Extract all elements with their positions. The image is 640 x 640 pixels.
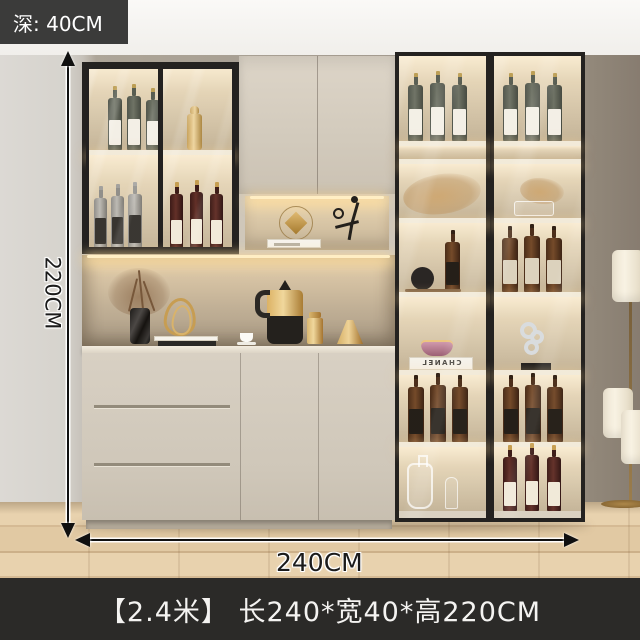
- gold-sculpture: [163, 297, 198, 337]
- arrow-left-icon: [75, 533, 90, 547]
- wine-bottle: [210, 194, 223, 250]
- arrow-up-icon: [61, 51, 75, 66]
- cabinet-interior: [86, 66, 235, 250]
- plinth: [86, 520, 392, 529]
- whisky-bottle: [445, 242, 460, 292]
- wine-bottle: [503, 85, 518, 141]
- door-seam: [240, 353, 241, 520]
- gold-cone-cup: [337, 320, 363, 344]
- wine-bottle: [127, 96, 141, 150]
- wine-bottle: [452, 85, 467, 141]
- gold-cup: [307, 318, 323, 344]
- chanel-book-label: CHANEL: [421, 360, 462, 367]
- shelf-row: [494, 146, 581, 159]
- gold-figurine: [187, 114, 202, 150]
- arrow-down-icon: [61, 523, 75, 538]
- shelf-row: [494, 164, 581, 218]
- caption-bar: 【2.4米】 长240*宽40*高220CM: [0, 578, 640, 640]
- wine-bottle: [146, 100, 160, 150]
- coffee-cup: [240, 333, 253, 342]
- decor-books: [154, 336, 218, 346]
- depth-label: 深: 40CM: [13, 8, 103, 37]
- black-vase: [130, 308, 150, 344]
- wine-bottle: [190, 192, 203, 250]
- height-dimension-arrow: [67, 64, 69, 524]
- shelf-row: [399, 223, 486, 292]
- width-dimension-arrow: [88, 539, 566, 541]
- glass-vase: [514, 201, 554, 216]
- whisky-bottle: [546, 238, 562, 292]
- wine-bottle: [525, 83, 540, 141]
- chanel-book: CHANEL: [409, 357, 473, 370]
- silver-sculpture: [516, 318, 556, 370]
- glass-decanter: [407, 463, 433, 509]
- depth-label-badge: 深: 40CM: [0, 0, 128, 44]
- base-cabinet: [82, 353, 395, 520]
- display-niche: [239, 194, 395, 255]
- decor-cube-sculpture: [279, 206, 313, 240]
- wine-bottle: [503, 457, 517, 511]
- wine-glass: [445, 477, 458, 509]
- pink-bowl: [421, 340, 453, 356]
- wine-bottle: [170, 194, 183, 250]
- width-label: 240CM: [276, 548, 363, 577]
- gold-cube: [285, 212, 308, 235]
- drawer-handle-groove: [94, 405, 230, 408]
- cabinet-base: [494, 511, 581, 518]
- caption-text: 【2.4米】 长240*宽40*高220CM: [99, 590, 541, 629]
- spirit-bottle: [94, 198, 107, 250]
- cabinet-interior: [494, 56, 581, 518]
- whisky-bottle: [525, 385, 541, 442]
- whisky-bottle: [430, 385, 446, 442]
- decor-disc: [411, 267, 434, 290]
- whisky-bottle: [503, 387, 519, 442]
- left-glass-cabinet: [82, 62, 239, 254]
- countertop: [82, 346, 395, 353]
- arrow-right-icon: [564, 533, 579, 547]
- door-seam: [318, 353, 319, 520]
- lamp-base: [601, 500, 640, 508]
- lamp-shade: [612, 250, 640, 302]
- shelf-row: [399, 447, 486, 511]
- upper-cabinet-doors: [239, 56, 395, 194]
- shelf-row: [494, 223, 581, 292]
- shelf-row: [494, 375, 581, 442]
- drawer-handle-groove: [94, 463, 230, 466]
- wine-bottle: [547, 457, 561, 511]
- shelf-row: CHANEL: [399, 297, 486, 370]
- shelf-row: [399, 164, 486, 218]
- shelf-row: [86, 66, 235, 150]
- whisky-bottle: [524, 236, 540, 292]
- height-label: 220CM: [40, 257, 64, 330]
- product-photo: CHANEL: [0, 0, 640, 640]
- cabinet-base: [399, 511, 486, 518]
- wine-bottle: [547, 85, 562, 141]
- whisky-bottle: [408, 387, 424, 442]
- wine-bottle: [108, 98, 122, 150]
- shelf-row: [399, 146, 486, 159]
- shelf-row: [399, 56, 486, 141]
- wine-bottle: [525, 455, 539, 511]
- shelf-row: [494, 56, 581, 141]
- wine-bottle: [408, 85, 423, 141]
- spirit-bottle: [128, 194, 142, 250]
- shelf-row: [494, 297, 581, 370]
- coffee-pot: [267, 288, 303, 344]
- open-shelf-niche: [82, 255, 395, 346]
- tall-glass-cabinet-right: [490, 52, 585, 522]
- tall-glass-cabinet-left: CHANEL: [395, 52, 490, 522]
- shelf-row: [494, 447, 581, 511]
- spirit-bottle: [111, 196, 124, 250]
- cabinet-interior: CHANEL: [399, 56, 486, 518]
- dancer-figurine: [331, 196, 367, 242]
- whisky-bottle: [547, 387, 563, 442]
- shelf-row: [399, 375, 486, 442]
- niche-interior: [245, 196, 389, 250]
- wine-bottle: [430, 83, 445, 141]
- led-strip: [87, 255, 390, 258]
- pampas-decor: [401, 169, 484, 219]
- lamp-shade: [621, 410, 640, 464]
- whisky-bottle: [452, 387, 468, 442]
- shelf-row: [86, 155, 235, 250]
- decor-book: [267, 239, 321, 248]
- whisky-bottle: [502, 238, 518, 292]
